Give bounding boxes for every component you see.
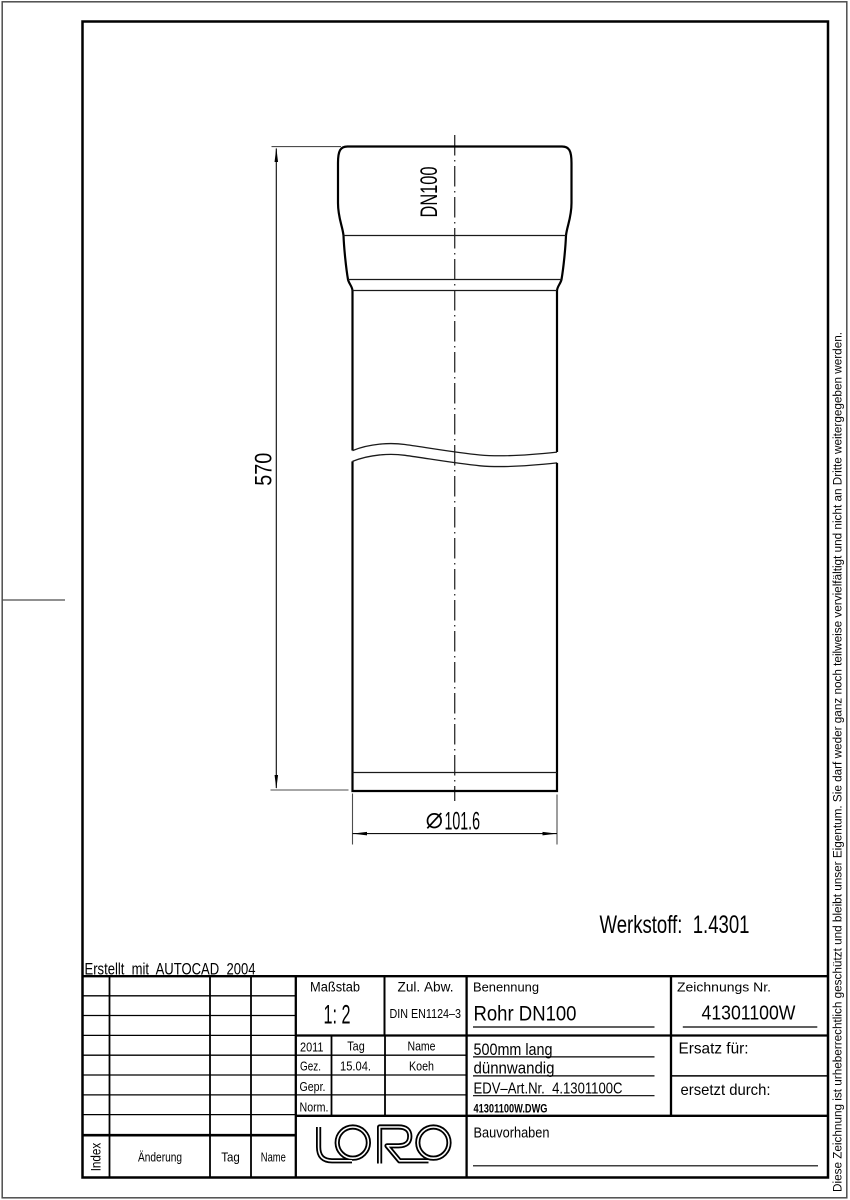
svg-text:2011: 2011 <box>300 1041 324 1055</box>
svg-text:Änderung: Änderung <box>138 1149 182 1164</box>
svg-text:Gepr.: Gepr. <box>300 1080 326 1094</box>
svg-text:EDV–Art.Nr. 4.1301100C: EDV–Art.Nr. 4.1301100C <box>474 1081 623 1098</box>
svg-text:Benennung: Benennung <box>473 981 539 995</box>
svg-text:Norm.: Norm. <box>300 1100 329 1114</box>
svg-text:15.04.: 15.04. <box>340 1060 371 1074</box>
svg-text:ersetzt durch:: ersetzt durch: <box>681 1082 771 1099</box>
svg-text:Name: Name <box>261 1149 286 1164</box>
svg-text:41301100W: 41301100W <box>702 1003 796 1025</box>
svg-text:Tag: Tag <box>221 1149 240 1164</box>
svg-text:Bauvorhaben: Bauvorhaben <box>474 1125 550 1142</box>
svg-text:dünnwandig: dünnwandig <box>474 1060 555 1078</box>
svg-text:Zeichnungs Nr.: Zeichnungs Nr. <box>677 981 771 995</box>
svg-text:Ersatz für:: Ersatz für: <box>679 1041 749 1058</box>
svg-text:41301100W.DWG: 41301100W.DWG <box>474 1102 548 1116</box>
svg-text:Tag: Tag <box>347 1040 365 1054</box>
svg-text:Name: Name <box>408 1040 436 1054</box>
svg-text:Rohr DN100: Rohr DN100 <box>474 1003 577 1026</box>
svg-text:Diese Zeichnung ist urheberrec: Diese Zeichnung ist urheberrechtlich ges… <box>833 332 845 1192</box>
svg-text:Zul. Abw.: Zul. Abw. <box>398 980 454 995</box>
svg-text:570: 570 <box>250 453 277 486</box>
svg-text:DIN EN1124–3: DIN EN1124–3 <box>390 1007 462 1021</box>
svg-text:Werkstoff: 1.4301: Werkstoff: 1.4301 <box>600 911 750 939</box>
svg-text:1: 2: 1: 2 <box>324 1000 351 1030</box>
svg-text:Index: Index <box>89 1143 104 1172</box>
svg-text:Koeh: Koeh <box>409 1060 434 1074</box>
svg-text:DN100: DN100 <box>416 167 443 218</box>
svg-text:Maßstab: Maßstab <box>310 980 360 995</box>
svg-text:Gez.: Gez. <box>300 1060 321 1074</box>
svg-text:101.6: 101.6 <box>445 807 481 835</box>
